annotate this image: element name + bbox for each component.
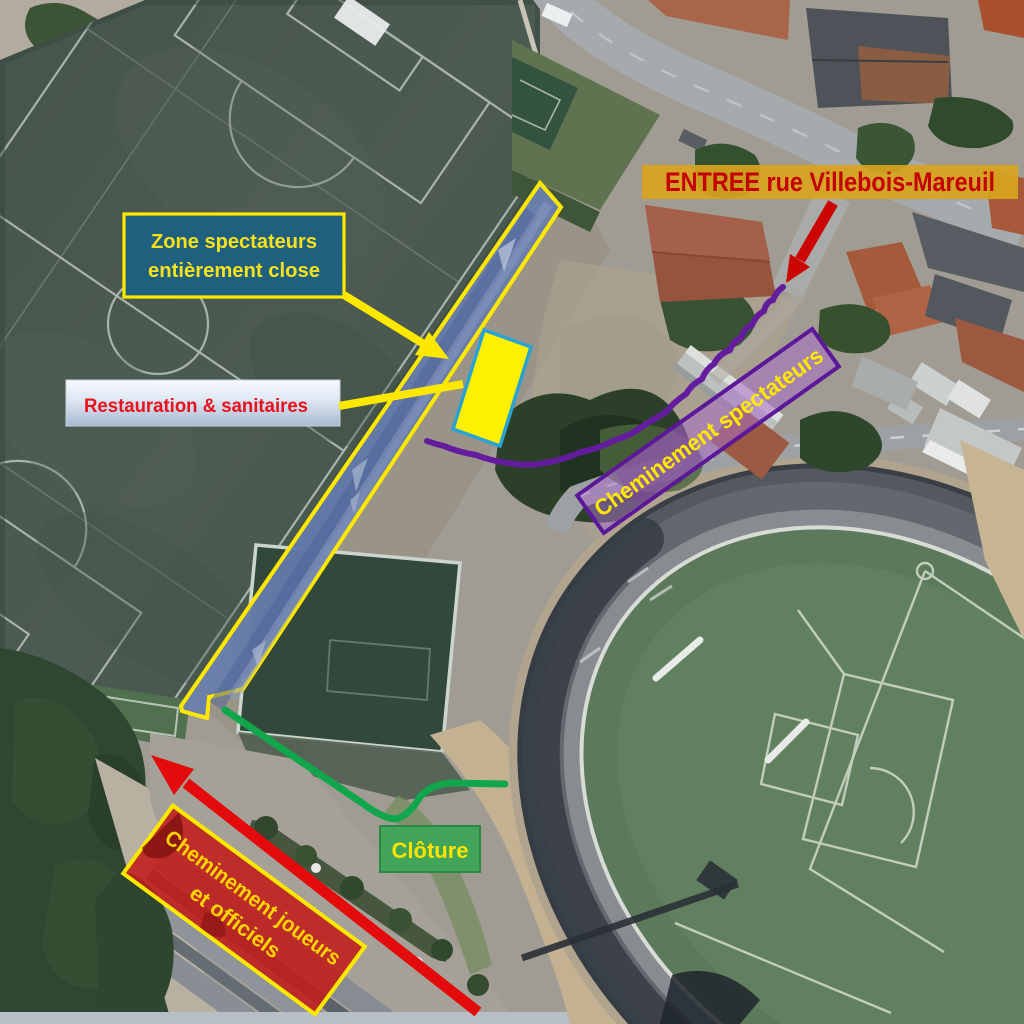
svg-text:entièrement close: entièrement close <box>148 260 320 282</box>
svg-text:Clôture: Clôture <box>392 838 469 863</box>
svg-text:Zone spectateurs: Zone spectateurs <box>151 231 317 253</box>
svg-text:ENTREE rue Villebois-Mareuil: ENTREE rue Villebois-Mareuil <box>665 167 995 197</box>
svg-text:Restauration & sanitaires: Restauration & sanitaires <box>84 395 308 417</box>
